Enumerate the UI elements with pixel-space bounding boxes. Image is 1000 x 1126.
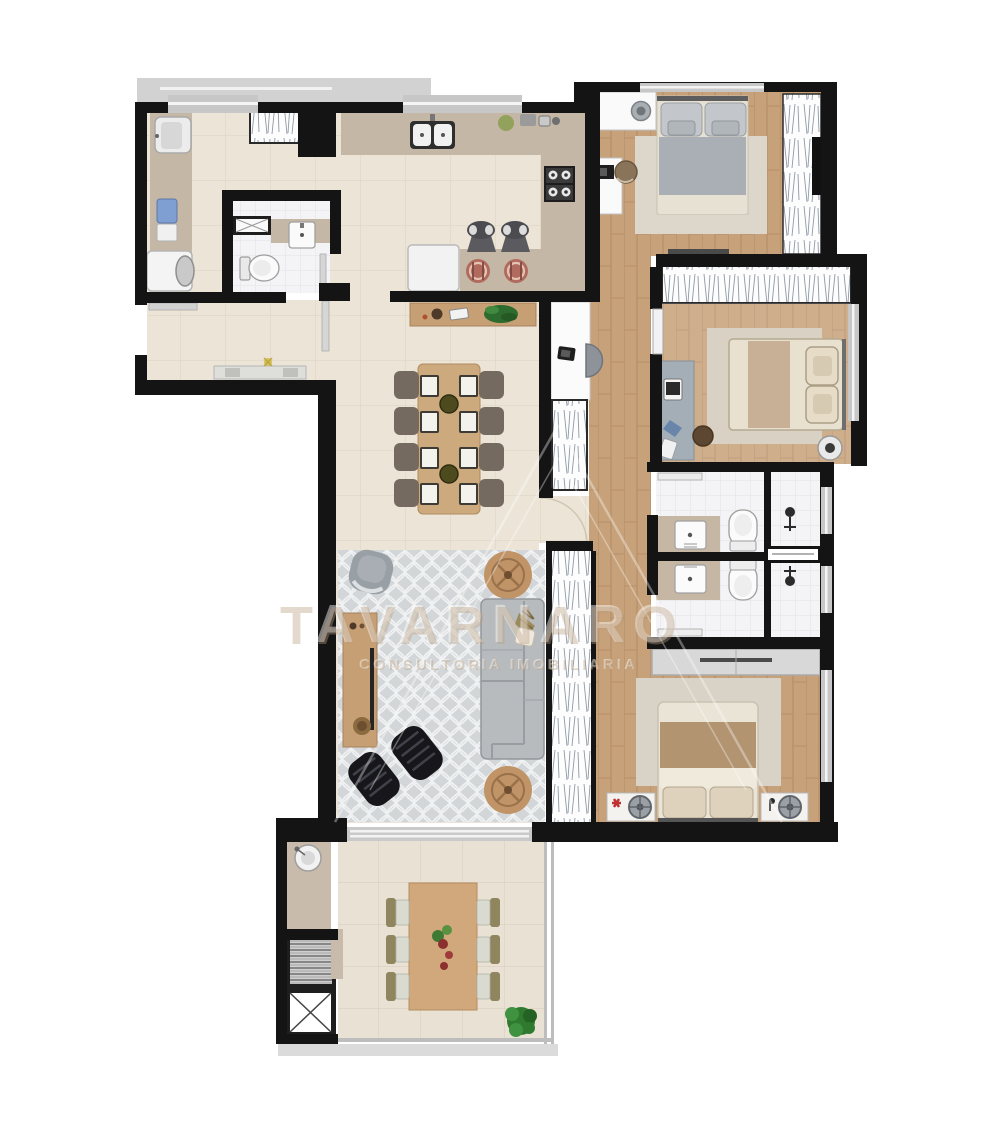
svg-text:TAVARNARO: TAVARNARO: [280, 596, 685, 656]
svg-text:CONSULTORIA IMOBILIARIA: CONSULTORIA IMOBILIARIA: [360, 657, 639, 674]
